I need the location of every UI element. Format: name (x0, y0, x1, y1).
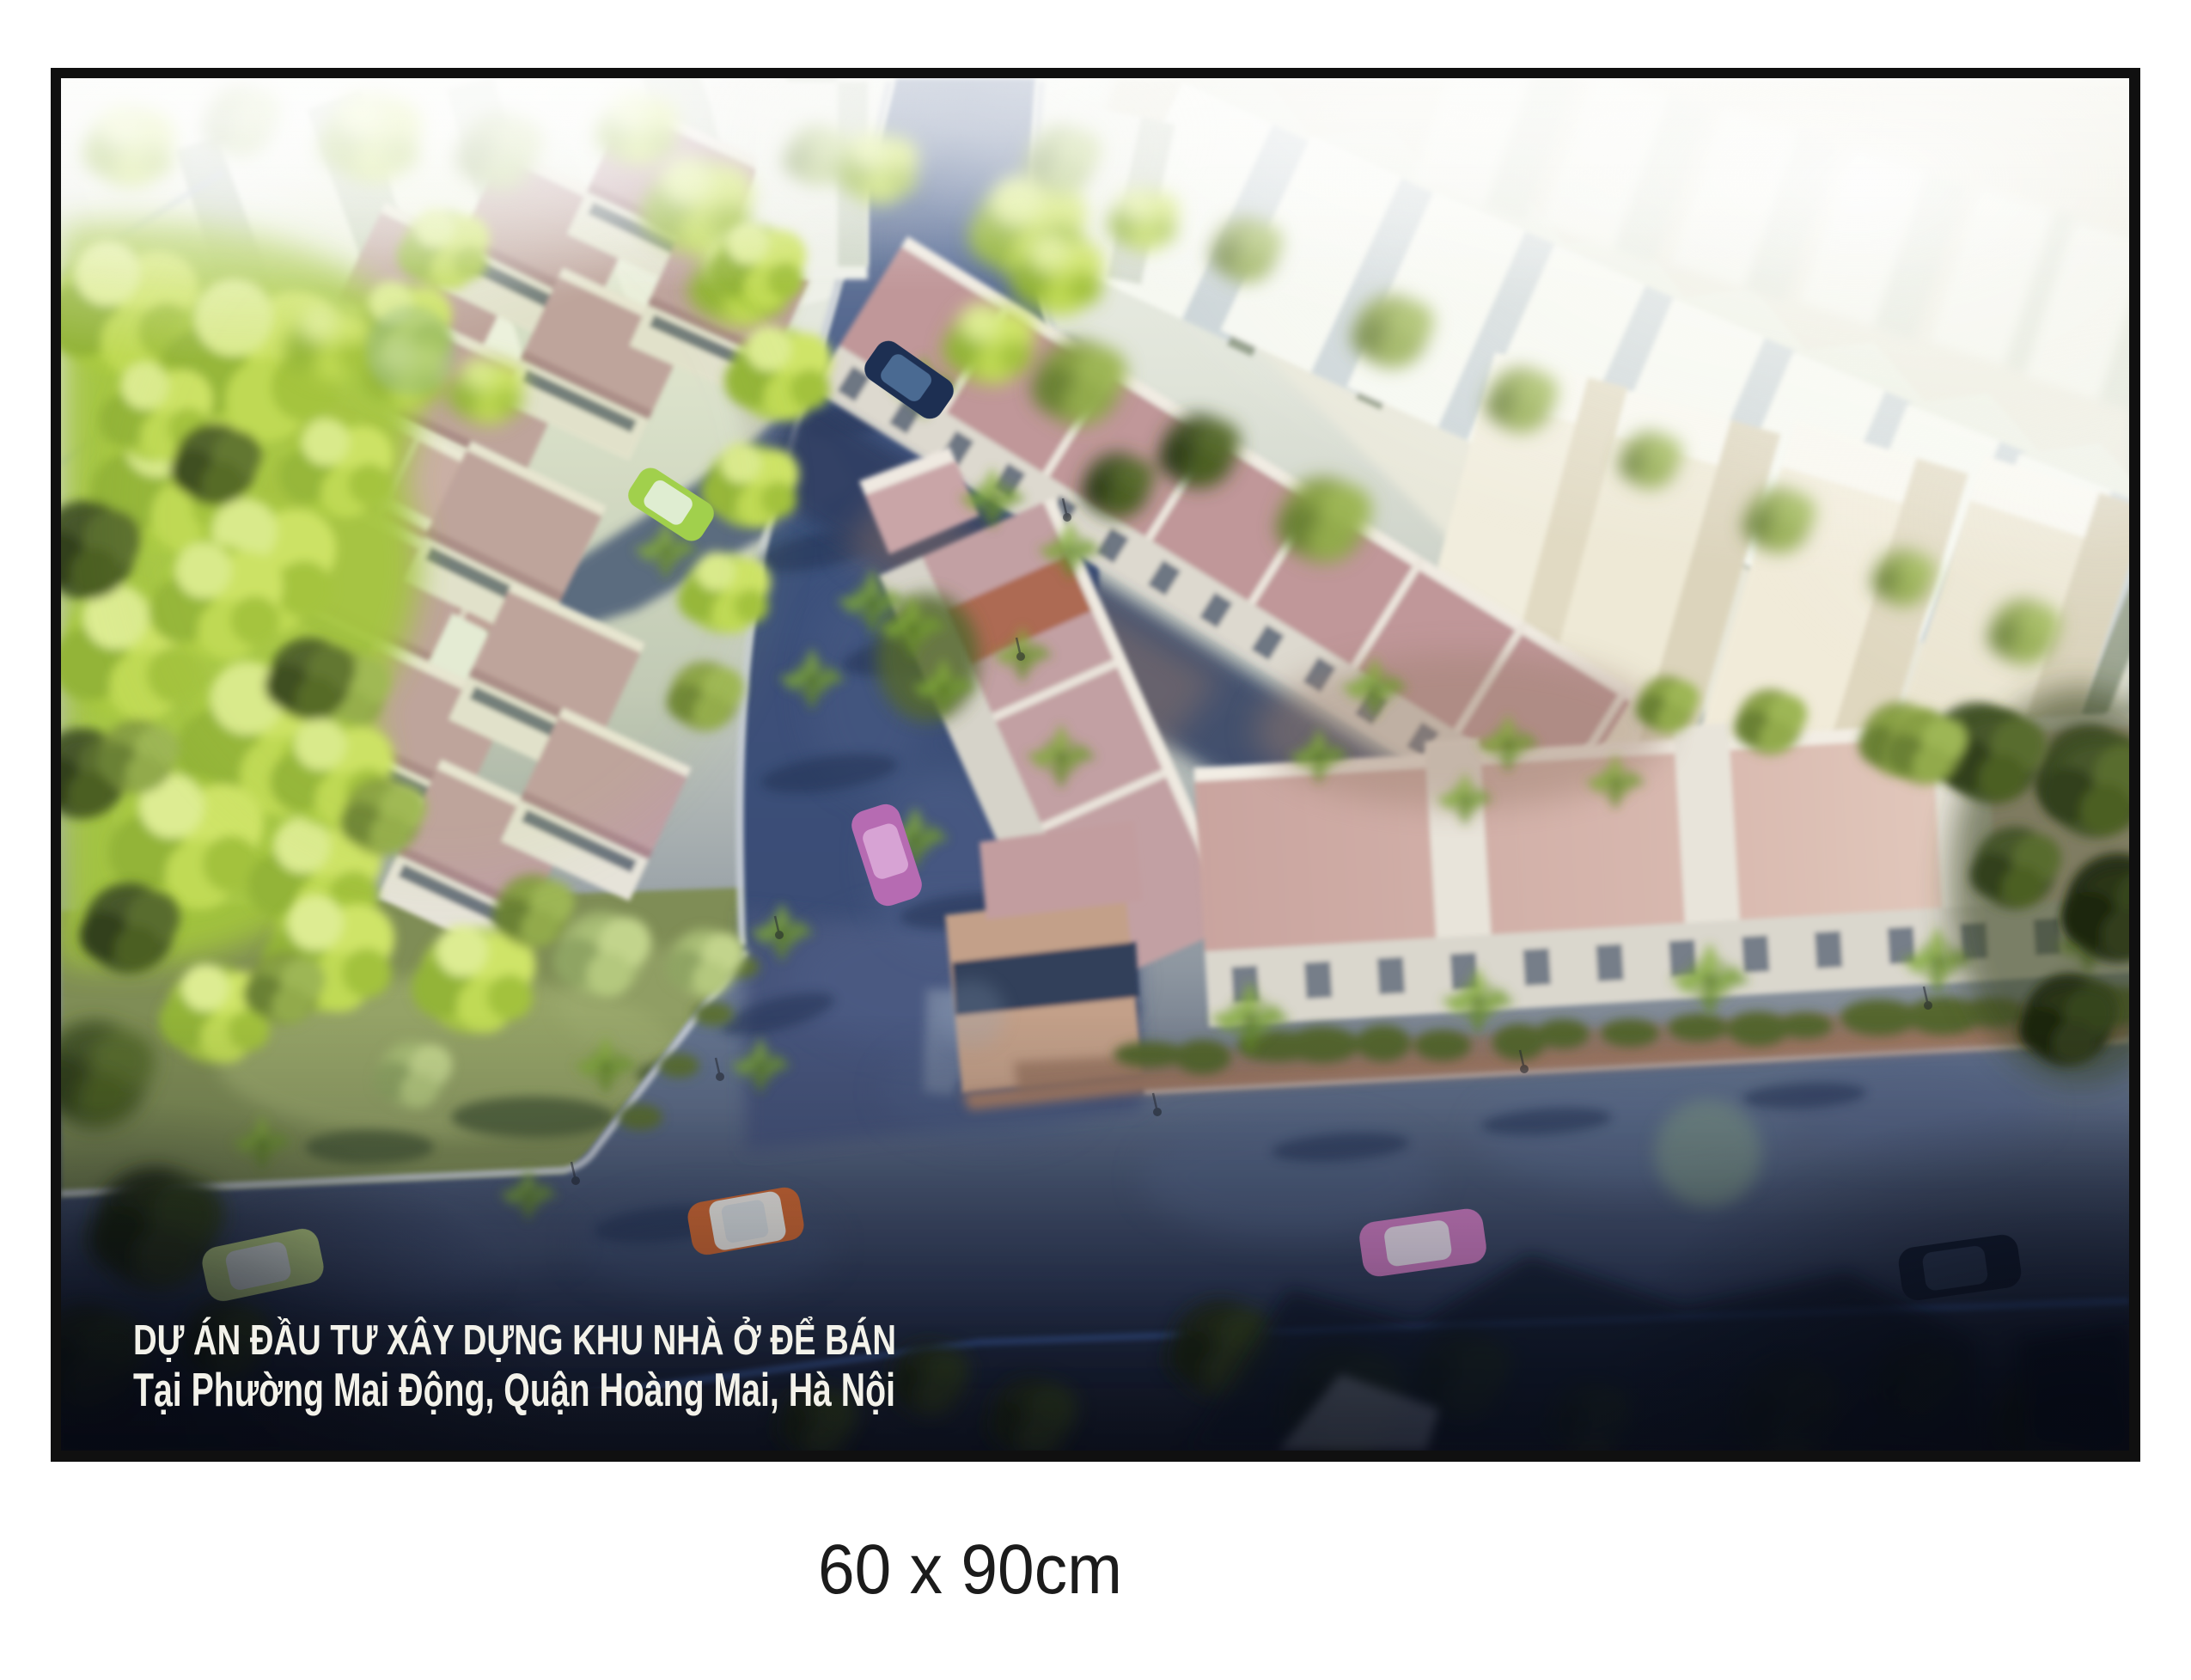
svg-text:Tại Phường Mai Động, Quận Hoàn: Tại Phường Mai Động, Quận Hoàng Mai, Hà … (133, 1363, 895, 1416)
svg-text:60 x 90cm: 60 x 90cm (818, 1530, 1122, 1609)
svg-text:DỰ ÁN ĐẦU TƯ XÂY DỰNG KHU NHÀ: DỰ ÁN ĐẦU TƯ XÂY DỰNG KHU NHÀ Ở ĐỂ BÁN (133, 1317, 896, 1364)
